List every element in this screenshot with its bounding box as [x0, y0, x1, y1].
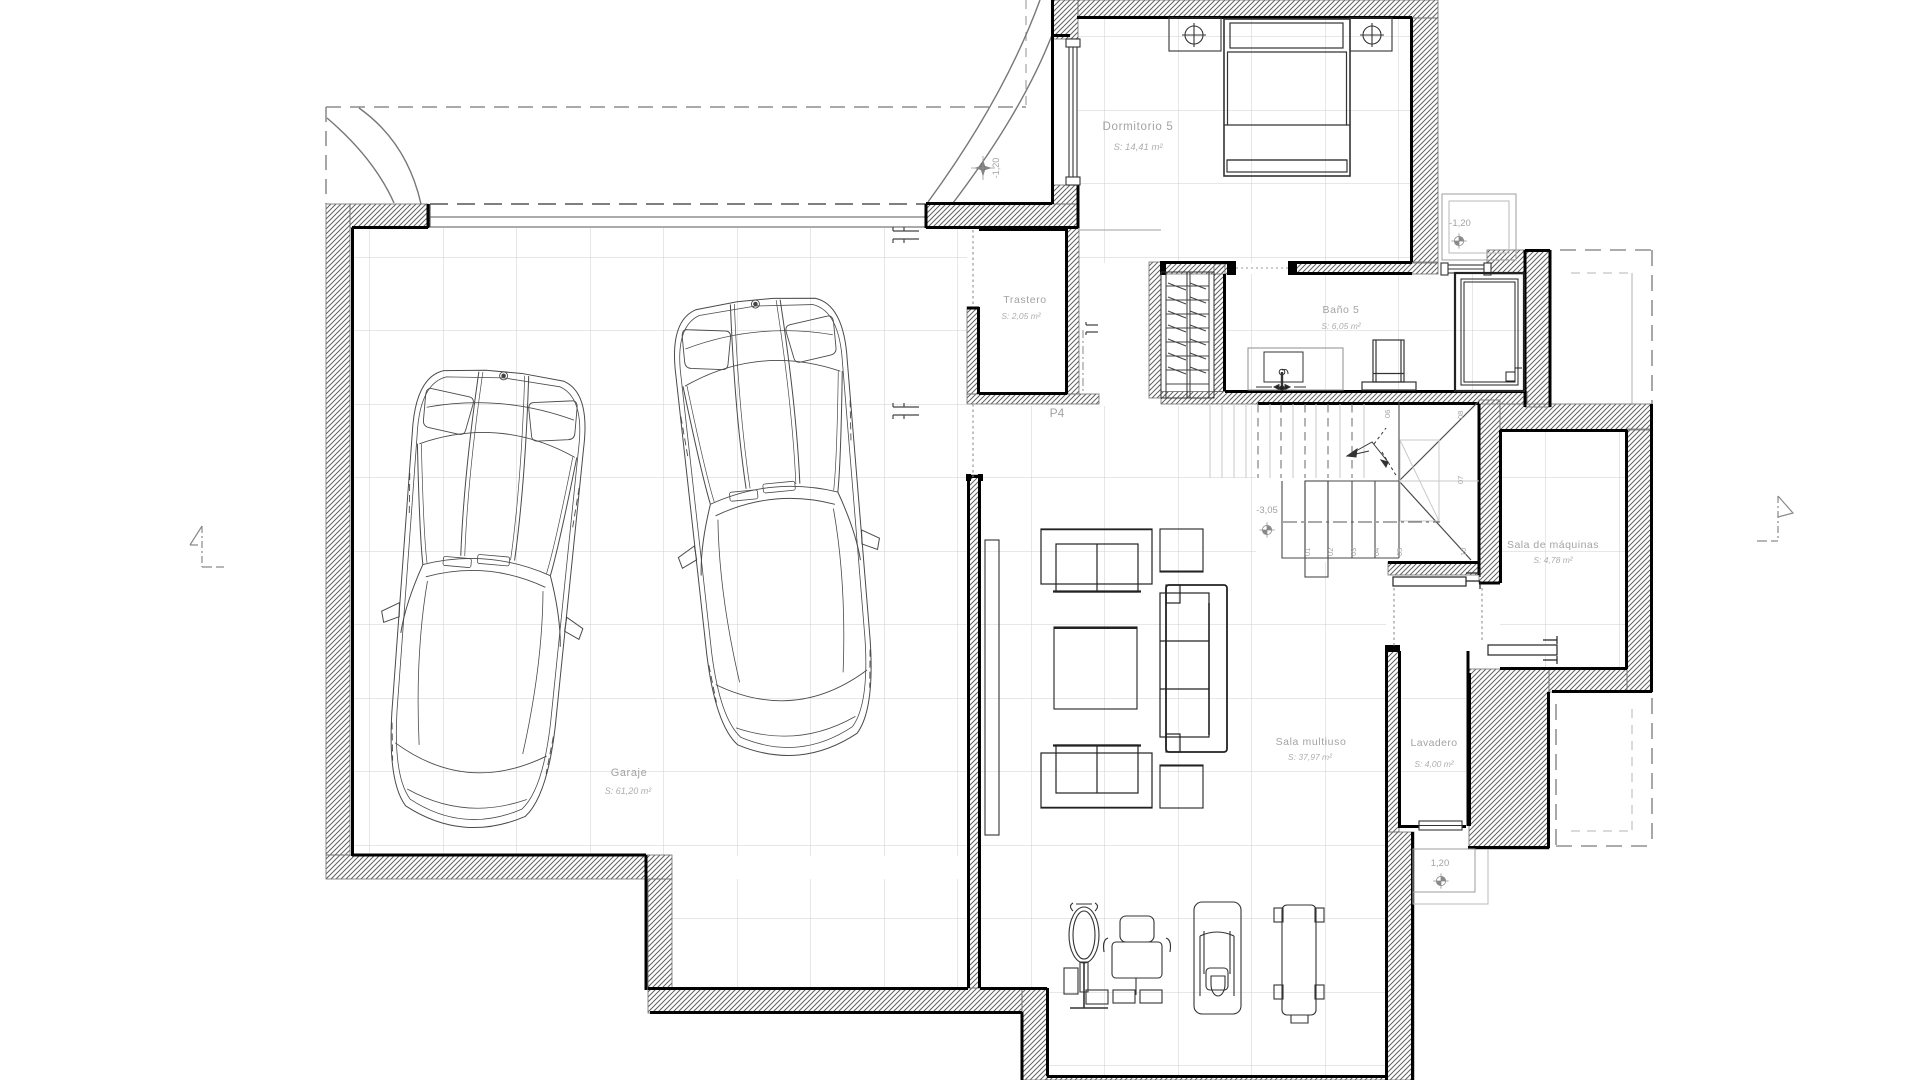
svg-text:S: 61,20 m²: S: 61,20 m²: [605, 786, 653, 796]
svg-text:10: 10: [1459, 548, 1468, 556]
svg-text:S: 37,97 m²: S: 37,97 m²: [1288, 752, 1333, 762]
svg-text:Baño 5: Baño 5: [1323, 304, 1360, 316]
svg-text:04: 04: [1372, 548, 1381, 556]
svg-text:1,20: 1,20: [1431, 858, 1450, 869]
svg-text:Garaje: Garaje: [611, 767, 648, 779]
svg-text:S: 4,78 m²: S: 4,78 m²: [1533, 555, 1573, 565]
svg-text:05: 05: [1395, 548, 1404, 556]
svg-text:Sala multiuso: Sala multiuso: [1276, 736, 1347, 748]
svg-text:S: 2,05 m²: S: 2,05 m²: [1001, 311, 1041, 321]
svg-text:S: 4,00 m²: S: 4,00 m²: [1414, 759, 1454, 769]
svg-text:Dormitorio 5: Dormitorio 5: [1102, 121, 1173, 133]
svg-text:-1,20: -1,20: [1449, 218, 1471, 229]
svg-text:03: 03: [1349, 548, 1358, 556]
svg-text:07: 07: [1456, 476, 1465, 484]
svg-text:-3,05: -3,05: [1256, 505, 1278, 516]
svg-text:01: 01: [1303, 548, 1312, 556]
svg-text:08: 08: [1456, 411, 1465, 419]
svg-text:S: 14,41 m²: S: 14,41 m²: [1113, 142, 1163, 153]
svg-text:Trastero: Trastero: [1003, 294, 1047, 306]
svg-text:Sala de máquinas: Sala de máquinas: [1507, 539, 1599, 551]
svg-text:06: 06: [1383, 410, 1392, 418]
svg-text:Lavadero: Lavadero: [1411, 737, 1458, 749]
svg-text:S: 6,05 m²: S: 6,05 m²: [1321, 321, 1361, 331]
svg-text:-1,20: -1,20: [991, 158, 1001, 179]
svg-text:P4: P4: [1050, 406, 1065, 420]
svg-text:02: 02: [1326, 548, 1335, 556]
